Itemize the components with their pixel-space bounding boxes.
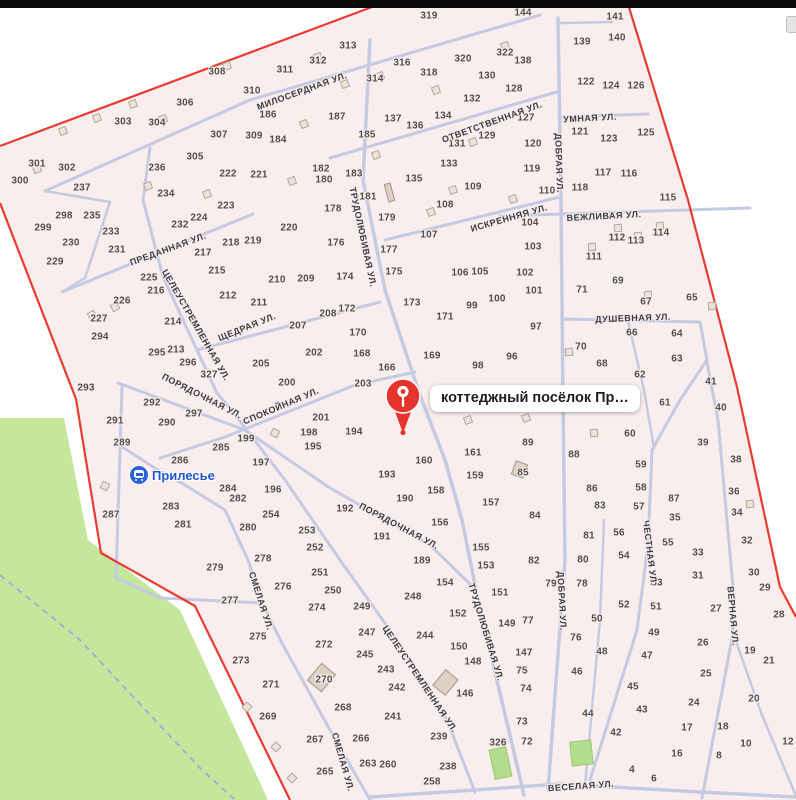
plot-number: 176 xyxy=(327,238,344,249)
plot-number: 192 xyxy=(336,504,353,515)
plot-number: 96 xyxy=(506,352,518,363)
plot-number: 273 xyxy=(232,656,249,667)
building xyxy=(463,415,473,425)
plot-number: 125 xyxy=(637,128,654,139)
plot-number: 243 xyxy=(377,665,394,676)
plot-number: 137 xyxy=(384,114,401,125)
building xyxy=(432,668,459,695)
plot-number: 286 xyxy=(171,456,188,467)
building xyxy=(588,243,597,252)
plot-number: 305 xyxy=(186,152,203,163)
plot-number: 282 xyxy=(229,494,246,505)
building xyxy=(708,302,717,311)
plot-number: 157 xyxy=(482,498,499,509)
plot-number: 177 xyxy=(380,245,397,256)
plot-number: 161 xyxy=(464,448,481,459)
plot-number: 34 xyxy=(731,508,743,519)
plot-number: 50 xyxy=(591,614,603,625)
building xyxy=(287,176,297,186)
plot-number: 85 xyxy=(517,468,529,479)
plot-number: 236 xyxy=(148,163,165,174)
plot-number: 268 xyxy=(334,703,351,714)
plot-number: 244 xyxy=(416,631,433,642)
plot-number: 21 xyxy=(763,656,775,667)
plot-number: 171 xyxy=(436,312,453,323)
plot-number: 71 xyxy=(576,285,588,296)
plot-number: 45 xyxy=(627,682,639,693)
plot-number: 308 xyxy=(208,67,225,78)
plot-number: 208 xyxy=(319,309,336,320)
plot-number: 81 xyxy=(583,531,595,542)
plot-number: 245 xyxy=(356,650,373,661)
plot-number: 46 xyxy=(571,667,583,678)
plot-number: 141 xyxy=(606,12,623,23)
pin-balloon-icon xyxy=(381,376,425,436)
plot-number: 227 xyxy=(90,314,107,325)
plot-number: 190 xyxy=(396,494,413,505)
plot-number: 24 xyxy=(688,698,700,709)
plot-number: 32 xyxy=(741,536,753,547)
plot-number: 267 xyxy=(306,735,323,746)
map-pin[interactable] xyxy=(381,376,425,436)
building xyxy=(468,137,478,147)
street-label: ВЕРНАЯ УЛ. xyxy=(725,586,740,646)
plot-number: 89 xyxy=(522,438,534,449)
plot-number: 68 xyxy=(596,359,608,370)
plot-number: 260 xyxy=(379,760,396,771)
plot-number: 26 xyxy=(697,638,709,649)
plot-number: 248 xyxy=(404,592,421,603)
plot-number: 225 xyxy=(140,273,157,284)
plot-number: 231 xyxy=(108,245,125,256)
plot-number: 146 xyxy=(456,689,473,700)
plot-number: 313 xyxy=(339,41,356,52)
plot-number: 201 xyxy=(312,413,329,424)
plot-number: 33 xyxy=(692,548,704,559)
plot-number: 253 xyxy=(298,526,315,537)
plot-number: 57 xyxy=(633,502,645,513)
plot-number: 43 xyxy=(636,705,648,716)
plot-number: 117 xyxy=(595,168,612,179)
plot-number: 279 xyxy=(206,563,223,574)
plot-number: 222 xyxy=(219,169,236,180)
plot-number: 61 xyxy=(659,398,671,409)
street-label: ПОРЯДОЧНАЯ УЛ. xyxy=(358,501,441,551)
plot-number: 287 xyxy=(102,510,119,521)
plot-number: 49 xyxy=(648,628,660,639)
building xyxy=(746,500,755,509)
building xyxy=(508,194,518,204)
plot-number: 105 xyxy=(471,267,488,278)
plot-number: 326 xyxy=(489,738,506,749)
plot-number: 221 xyxy=(250,170,267,181)
plot-number: 202 xyxy=(305,348,322,359)
plot-number: 52 xyxy=(618,600,630,611)
plot-number: 64 xyxy=(671,329,683,340)
plot-number: 122 xyxy=(577,77,594,88)
plot-number: 128 xyxy=(505,84,522,95)
plot-number: 29 xyxy=(759,583,771,594)
plot-number: 185 xyxy=(358,130,375,141)
plot-number: 274 xyxy=(308,603,325,614)
building xyxy=(286,772,297,783)
plot-number: 220 xyxy=(280,223,297,234)
building xyxy=(383,182,395,202)
building xyxy=(270,428,281,439)
station-label[interactable]: Прилесье xyxy=(130,466,215,484)
plot-number: 58 xyxy=(635,483,647,494)
plot-number: 130 xyxy=(478,71,495,82)
plot-number: 194 xyxy=(345,427,362,438)
plot-number: 101 xyxy=(525,286,542,297)
building xyxy=(565,348,574,357)
station-name: Прилесье xyxy=(152,468,215,483)
plot-number: 209 xyxy=(297,274,314,285)
plot-number: 147 xyxy=(515,648,532,659)
plot-number: 292 xyxy=(143,398,160,409)
plot-number: 35 xyxy=(669,513,681,524)
plot-number: 272 xyxy=(315,640,332,651)
plot-number: 285 xyxy=(212,443,229,454)
plot-number: 299 xyxy=(34,223,51,234)
plot-number: 210 xyxy=(268,275,285,286)
street-label: УМНАЯ УЛ. xyxy=(563,112,617,125)
plot-number: 170 xyxy=(349,328,366,339)
plot-number: 277 xyxy=(221,596,238,607)
plot-number: 136 xyxy=(406,121,423,132)
building xyxy=(100,481,111,492)
plot-number: 60 xyxy=(624,429,636,440)
plot-number: 175 xyxy=(385,267,402,278)
plot-number: 86 xyxy=(586,484,598,495)
street-label: СПОКОЙНАЯ УЛ. xyxy=(242,385,321,426)
plot-number: 252 xyxy=(306,543,323,554)
plot-number: 166 xyxy=(378,363,395,374)
street-label: ЧЕСТНАЯ УЛ. xyxy=(641,520,659,586)
plot-number: 319 xyxy=(420,11,437,22)
building xyxy=(590,429,599,438)
plot-number: 266 xyxy=(352,734,369,745)
plot-number: 309 xyxy=(245,131,262,142)
plot-number: 304 xyxy=(148,118,165,129)
street-label: ДОБРАЯ УЛ. xyxy=(553,133,565,193)
plot-number: 160 xyxy=(415,456,432,467)
plot-number: 77 xyxy=(522,616,534,627)
street-label: МИЛОСЕРДНАЯ УЛ. xyxy=(256,70,349,112)
plot-number: 51 xyxy=(650,602,662,613)
plot-number: 294 xyxy=(91,332,108,343)
plot-number: 54 xyxy=(618,551,630,562)
building xyxy=(521,413,531,423)
plot-number: 144 xyxy=(514,8,531,19)
plot-number: 83 xyxy=(594,501,606,512)
plot-number: 149 xyxy=(498,619,515,630)
plot-number: 311 xyxy=(277,65,294,76)
plot-number: 30 xyxy=(748,568,760,579)
building xyxy=(299,119,309,129)
plot-number: 234 xyxy=(157,189,174,200)
plot-number: 223 xyxy=(217,201,234,212)
plot-number: 318 xyxy=(420,68,437,79)
plot-number: 187 xyxy=(328,112,345,123)
plot-number: 40 xyxy=(715,403,727,414)
street-label: ВЕЖЛИВАЯ УЛ. xyxy=(566,209,641,223)
plot-number: 69 xyxy=(612,276,624,287)
plot-number: 280 xyxy=(239,523,256,534)
plot-number: 306 xyxy=(176,98,193,109)
partial-control[interactable] xyxy=(786,16,796,33)
plot-number: 107 xyxy=(420,230,437,241)
plot-number: 312 xyxy=(309,56,326,67)
plot-number: 154 xyxy=(436,578,453,589)
plot-number: 56 xyxy=(613,528,625,539)
plot-number: 295 xyxy=(148,348,165,359)
plot-number: 28 xyxy=(773,610,785,621)
plot-number: 27 xyxy=(710,604,722,615)
plot-number: 55 xyxy=(662,538,674,549)
plot-number: 296 xyxy=(179,358,196,369)
plot-number: 303 xyxy=(114,117,131,128)
plot-number: 75 xyxy=(516,666,528,677)
plot-number: 200 xyxy=(278,378,295,389)
map-canvas[interactable]: 3191441411401393133223203121383163113083… xyxy=(0,0,796,800)
plot-number: 275 xyxy=(249,632,266,643)
plot-number: 301 xyxy=(28,159,45,170)
plot-number: 123 xyxy=(600,134,617,145)
plot-number: 217 xyxy=(194,248,211,259)
plot-number: 140 xyxy=(608,33,625,44)
plot-number: 16 xyxy=(671,749,683,760)
plot-number: 72 xyxy=(521,737,533,748)
plot-number: 298 xyxy=(55,211,72,222)
plot-number: 99 xyxy=(466,301,478,312)
plot-number: 216 xyxy=(147,286,164,297)
plot-number: 270 xyxy=(315,675,332,686)
plot-number: 250 xyxy=(324,586,341,597)
plot-number: 132 xyxy=(463,94,480,105)
plot-number: 18 xyxy=(717,722,729,733)
plot-number: 283 xyxy=(162,502,179,513)
plot-number: 150 xyxy=(450,642,467,653)
plot-number: 153 xyxy=(477,561,494,572)
top-black-bar xyxy=(0,0,796,8)
plot-number: 25 xyxy=(700,669,712,680)
building xyxy=(92,113,102,123)
building xyxy=(448,185,458,195)
plot-number: 169 xyxy=(423,351,440,362)
plot-number: 148 xyxy=(464,657,481,668)
plot-number: 224 xyxy=(190,213,207,224)
plot-number: 138 xyxy=(514,56,531,67)
plot-number: 104 xyxy=(521,218,538,229)
plot-number: 114 xyxy=(653,228,670,239)
plot-number: 290 xyxy=(158,418,175,429)
plot-number: 62 xyxy=(634,370,646,381)
plot-number: 182 xyxy=(312,164,329,175)
plot-number: 129 xyxy=(478,131,495,142)
plot-number: 158 xyxy=(427,486,444,497)
plot-number: 322 xyxy=(496,48,513,59)
plot-number: 205 xyxy=(252,359,269,370)
plot-number: 316 xyxy=(393,58,410,69)
plot-number: 237 xyxy=(73,183,90,194)
plot-number: 151 xyxy=(491,588,508,599)
street-label: ДУШЕВНАЯ УЛ. xyxy=(595,312,671,325)
plot-number: 179 xyxy=(378,213,395,224)
plot-number: 74 xyxy=(520,684,532,695)
plot-number: 102 xyxy=(516,268,533,279)
plot-number: 327 xyxy=(200,370,217,381)
plot-number: 297 xyxy=(185,409,202,420)
plot-number: 271 xyxy=(262,680,279,691)
street-label: ВЕСЕЛАЯ УЛ. xyxy=(548,779,615,794)
plot-number: 126 xyxy=(627,81,644,92)
plot-number: 174 xyxy=(336,272,353,283)
plot-number: 181 xyxy=(359,192,376,203)
plot-number: 115 xyxy=(660,193,677,204)
plot-number: 198 xyxy=(300,428,317,439)
plot-number: 189 xyxy=(413,556,430,567)
plot-number: 118 xyxy=(572,183,589,194)
plot-number: 84 xyxy=(529,511,541,522)
plot-number: 109 xyxy=(464,182,481,193)
building xyxy=(614,224,623,233)
plot-number: 310 xyxy=(243,86,260,97)
building xyxy=(431,85,441,95)
plot-number: 100 xyxy=(488,294,505,305)
plot-number: 80 xyxy=(577,555,589,566)
plot-number: 119 xyxy=(524,164,541,175)
plot-number: 183 xyxy=(345,169,362,180)
building xyxy=(143,181,153,191)
plot-number: 219 xyxy=(244,236,261,247)
plot-number: 44 xyxy=(582,709,594,720)
plot-number: 212 xyxy=(219,291,236,302)
plot-number: 172 xyxy=(338,304,355,315)
plot-number: 214 xyxy=(164,317,181,328)
plot-number: 247 xyxy=(358,628,375,639)
plot-number: 289 xyxy=(113,438,130,449)
plot-number: 112 xyxy=(609,233,626,244)
plot-number: 152 xyxy=(449,609,466,620)
plot-number: 88 xyxy=(568,450,580,461)
plot-number: 110 xyxy=(539,186,556,197)
plot-number: 133 xyxy=(440,159,457,170)
plot-number: 278 xyxy=(254,554,271,565)
plot-number: 238 xyxy=(439,762,456,773)
plot-number: 108 xyxy=(436,200,453,211)
building xyxy=(241,701,252,712)
plot-number: 78 xyxy=(576,579,588,590)
plot-number: 20 xyxy=(748,694,760,705)
pin-label[interactable]: коттеджный посёлок Пр… xyxy=(430,385,640,412)
plot-number: 39 xyxy=(697,438,709,449)
plot-number: 103 xyxy=(524,242,541,253)
plot-number: 156 xyxy=(431,518,448,529)
plot-number: 120 xyxy=(524,139,541,150)
plot-number: 293 xyxy=(77,383,94,394)
plot-number: 265 xyxy=(316,767,333,778)
plot-number: 191 xyxy=(373,532,390,543)
plot-number: 276 xyxy=(274,582,291,593)
building xyxy=(371,150,381,160)
plot-number: 155 xyxy=(472,543,489,554)
plot-number: 302 xyxy=(58,163,75,174)
plot-number: 235 xyxy=(83,211,100,222)
plot-number: 230 xyxy=(62,238,79,249)
street-label: ЩЕДРАЯ УЛ. xyxy=(217,311,278,343)
plot-number: 195 xyxy=(304,442,321,453)
plot-number: 4 xyxy=(629,765,635,776)
plot-number: 241 xyxy=(384,712,401,723)
street-label: ДОБРАЯ УЛ. xyxy=(555,571,568,631)
plot-number: 320 xyxy=(454,54,471,65)
plot-number: 38 xyxy=(730,455,742,466)
plot-number: 300 xyxy=(11,176,28,187)
plot-number: 10 xyxy=(740,739,752,750)
plot-number: 121 xyxy=(571,127,588,138)
plot-number: 41 xyxy=(705,377,717,388)
plot-number: 281 xyxy=(174,520,191,531)
plot-number: 263 xyxy=(359,759,376,770)
plot-number: 87 xyxy=(668,494,680,505)
plot-number: 197 xyxy=(252,458,269,469)
plot-number: 6 xyxy=(651,774,657,785)
plot-number: 199 xyxy=(237,434,254,445)
plot-number: 314 xyxy=(366,74,383,85)
plot-number: 291 xyxy=(106,416,123,427)
plot-number: 180 xyxy=(315,175,332,186)
plot-number: 184 xyxy=(269,135,286,146)
plot-number: 12 xyxy=(782,737,794,748)
plot-number: 203 xyxy=(354,379,371,390)
plot-number: 106 xyxy=(451,268,468,279)
plot-number: 65 xyxy=(686,293,698,304)
plot-number: 19 xyxy=(744,646,756,657)
plot-number: 63 xyxy=(671,354,683,365)
plot-number: 113 xyxy=(628,236,645,247)
plot-number: 242 xyxy=(388,683,405,694)
building xyxy=(128,99,138,109)
plot-number: 251 xyxy=(311,568,328,579)
plot-number: 98 xyxy=(472,361,484,372)
plot-number: 82 xyxy=(528,556,540,567)
plot-number: 76 xyxy=(570,633,582,644)
plot-number: 226 xyxy=(113,296,130,307)
plot-number: 8 xyxy=(716,751,722,762)
plot-number: 159 xyxy=(466,471,483,482)
street-label: СМЕЛАЯ УЛ. xyxy=(247,571,275,632)
plot-number: 215 xyxy=(208,266,225,277)
plot-number: 232 xyxy=(171,220,188,231)
plot-number: 48 xyxy=(596,647,608,658)
plot-number: 178 xyxy=(324,204,341,215)
plot-number: 186 xyxy=(259,110,276,121)
building xyxy=(58,126,68,136)
plot-number: 17 xyxy=(681,723,693,734)
plot-number: 124 xyxy=(602,81,619,92)
plot-number: 193 xyxy=(378,470,395,481)
plot-number: 139 xyxy=(573,37,590,48)
plot-number: 67 xyxy=(640,297,652,308)
plot-number: 116 xyxy=(621,169,638,180)
plot-number: 211 xyxy=(251,298,268,309)
building xyxy=(202,189,212,199)
plot-number: 111 xyxy=(586,252,602,263)
plot-number: 218 xyxy=(222,238,239,249)
plot-number: 269 xyxy=(259,712,276,723)
plot-number: 258 xyxy=(423,777,440,788)
